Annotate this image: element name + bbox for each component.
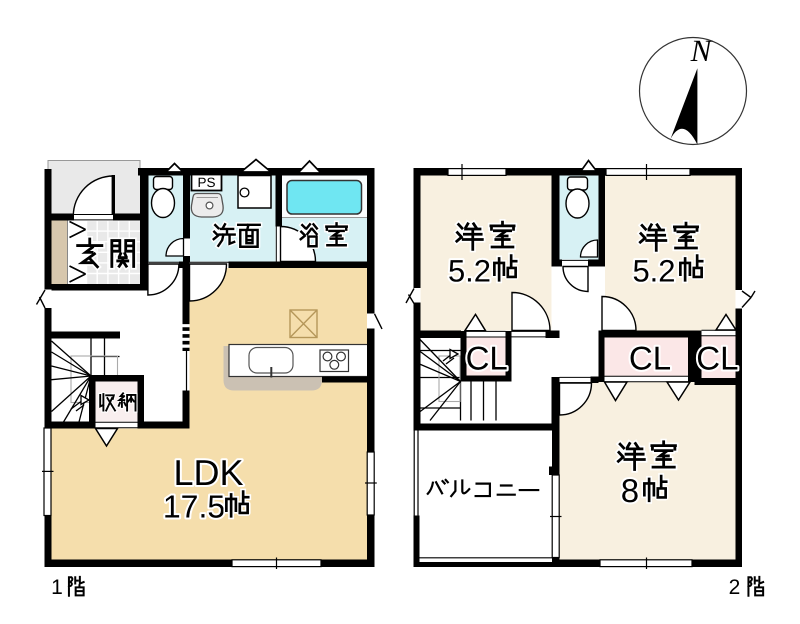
- svg-text:CL: CL: [629, 339, 671, 376]
- svg-text:N: N: [690, 33, 714, 68]
- svg-text:LDK: LDK: [173, 452, 243, 493]
- svg-text:2: 2: [729, 576, 741, 599]
- svg-text:1: 1: [51, 576, 63, 599]
- svg-text:17.5: 17.5: [163, 489, 225, 525]
- svg-text:5.2: 5.2: [448, 254, 491, 289]
- svg-text:PS: PS: [197, 175, 215, 190]
- svg-text:CL: CL: [696, 339, 738, 376]
- svg-text:CL: CL: [466, 339, 508, 376]
- svg-text:5.2: 5.2: [632, 254, 675, 289]
- svg-text:8: 8: [621, 472, 639, 509]
